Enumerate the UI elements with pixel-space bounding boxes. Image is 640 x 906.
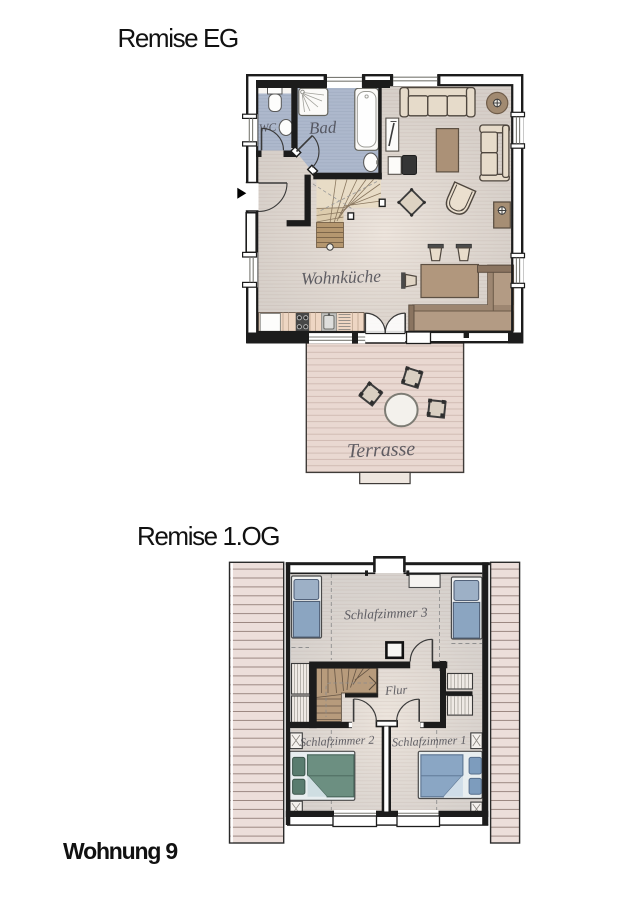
svg-text:Schlafzimmer 1: Schlafzimmer 1	[392, 733, 467, 750]
svg-text:Schlafzimmer 3: Schlafzimmer 3	[344, 605, 428, 623]
svg-text:Flur: Flur	[384, 683, 408, 699]
svg-text:Remise 1.OG: Remise 1.OG	[137, 521, 279, 551]
svg-text:Bad: Bad	[309, 117, 338, 137]
svg-text:Schlafzimmer 2: Schlafzimmer 2	[300, 733, 375, 750]
svg-text:Remise EG: Remise EG	[118, 23, 238, 53]
svg-text:Terrasse: Terrasse	[347, 438, 416, 462]
svg-text:Wohnküche: Wohnküche	[301, 266, 382, 289]
svg-text:Wohnung 9: Wohnung 9	[63, 838, 177, 864]
